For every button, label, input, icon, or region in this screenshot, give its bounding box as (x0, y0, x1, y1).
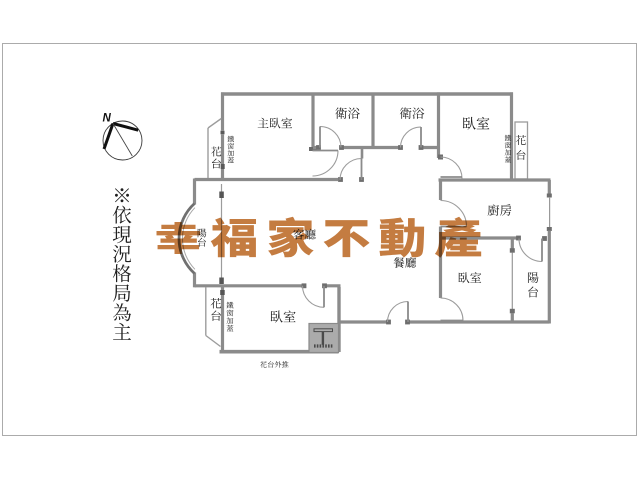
svg-text:N: N (103, 113, 112, 125)
